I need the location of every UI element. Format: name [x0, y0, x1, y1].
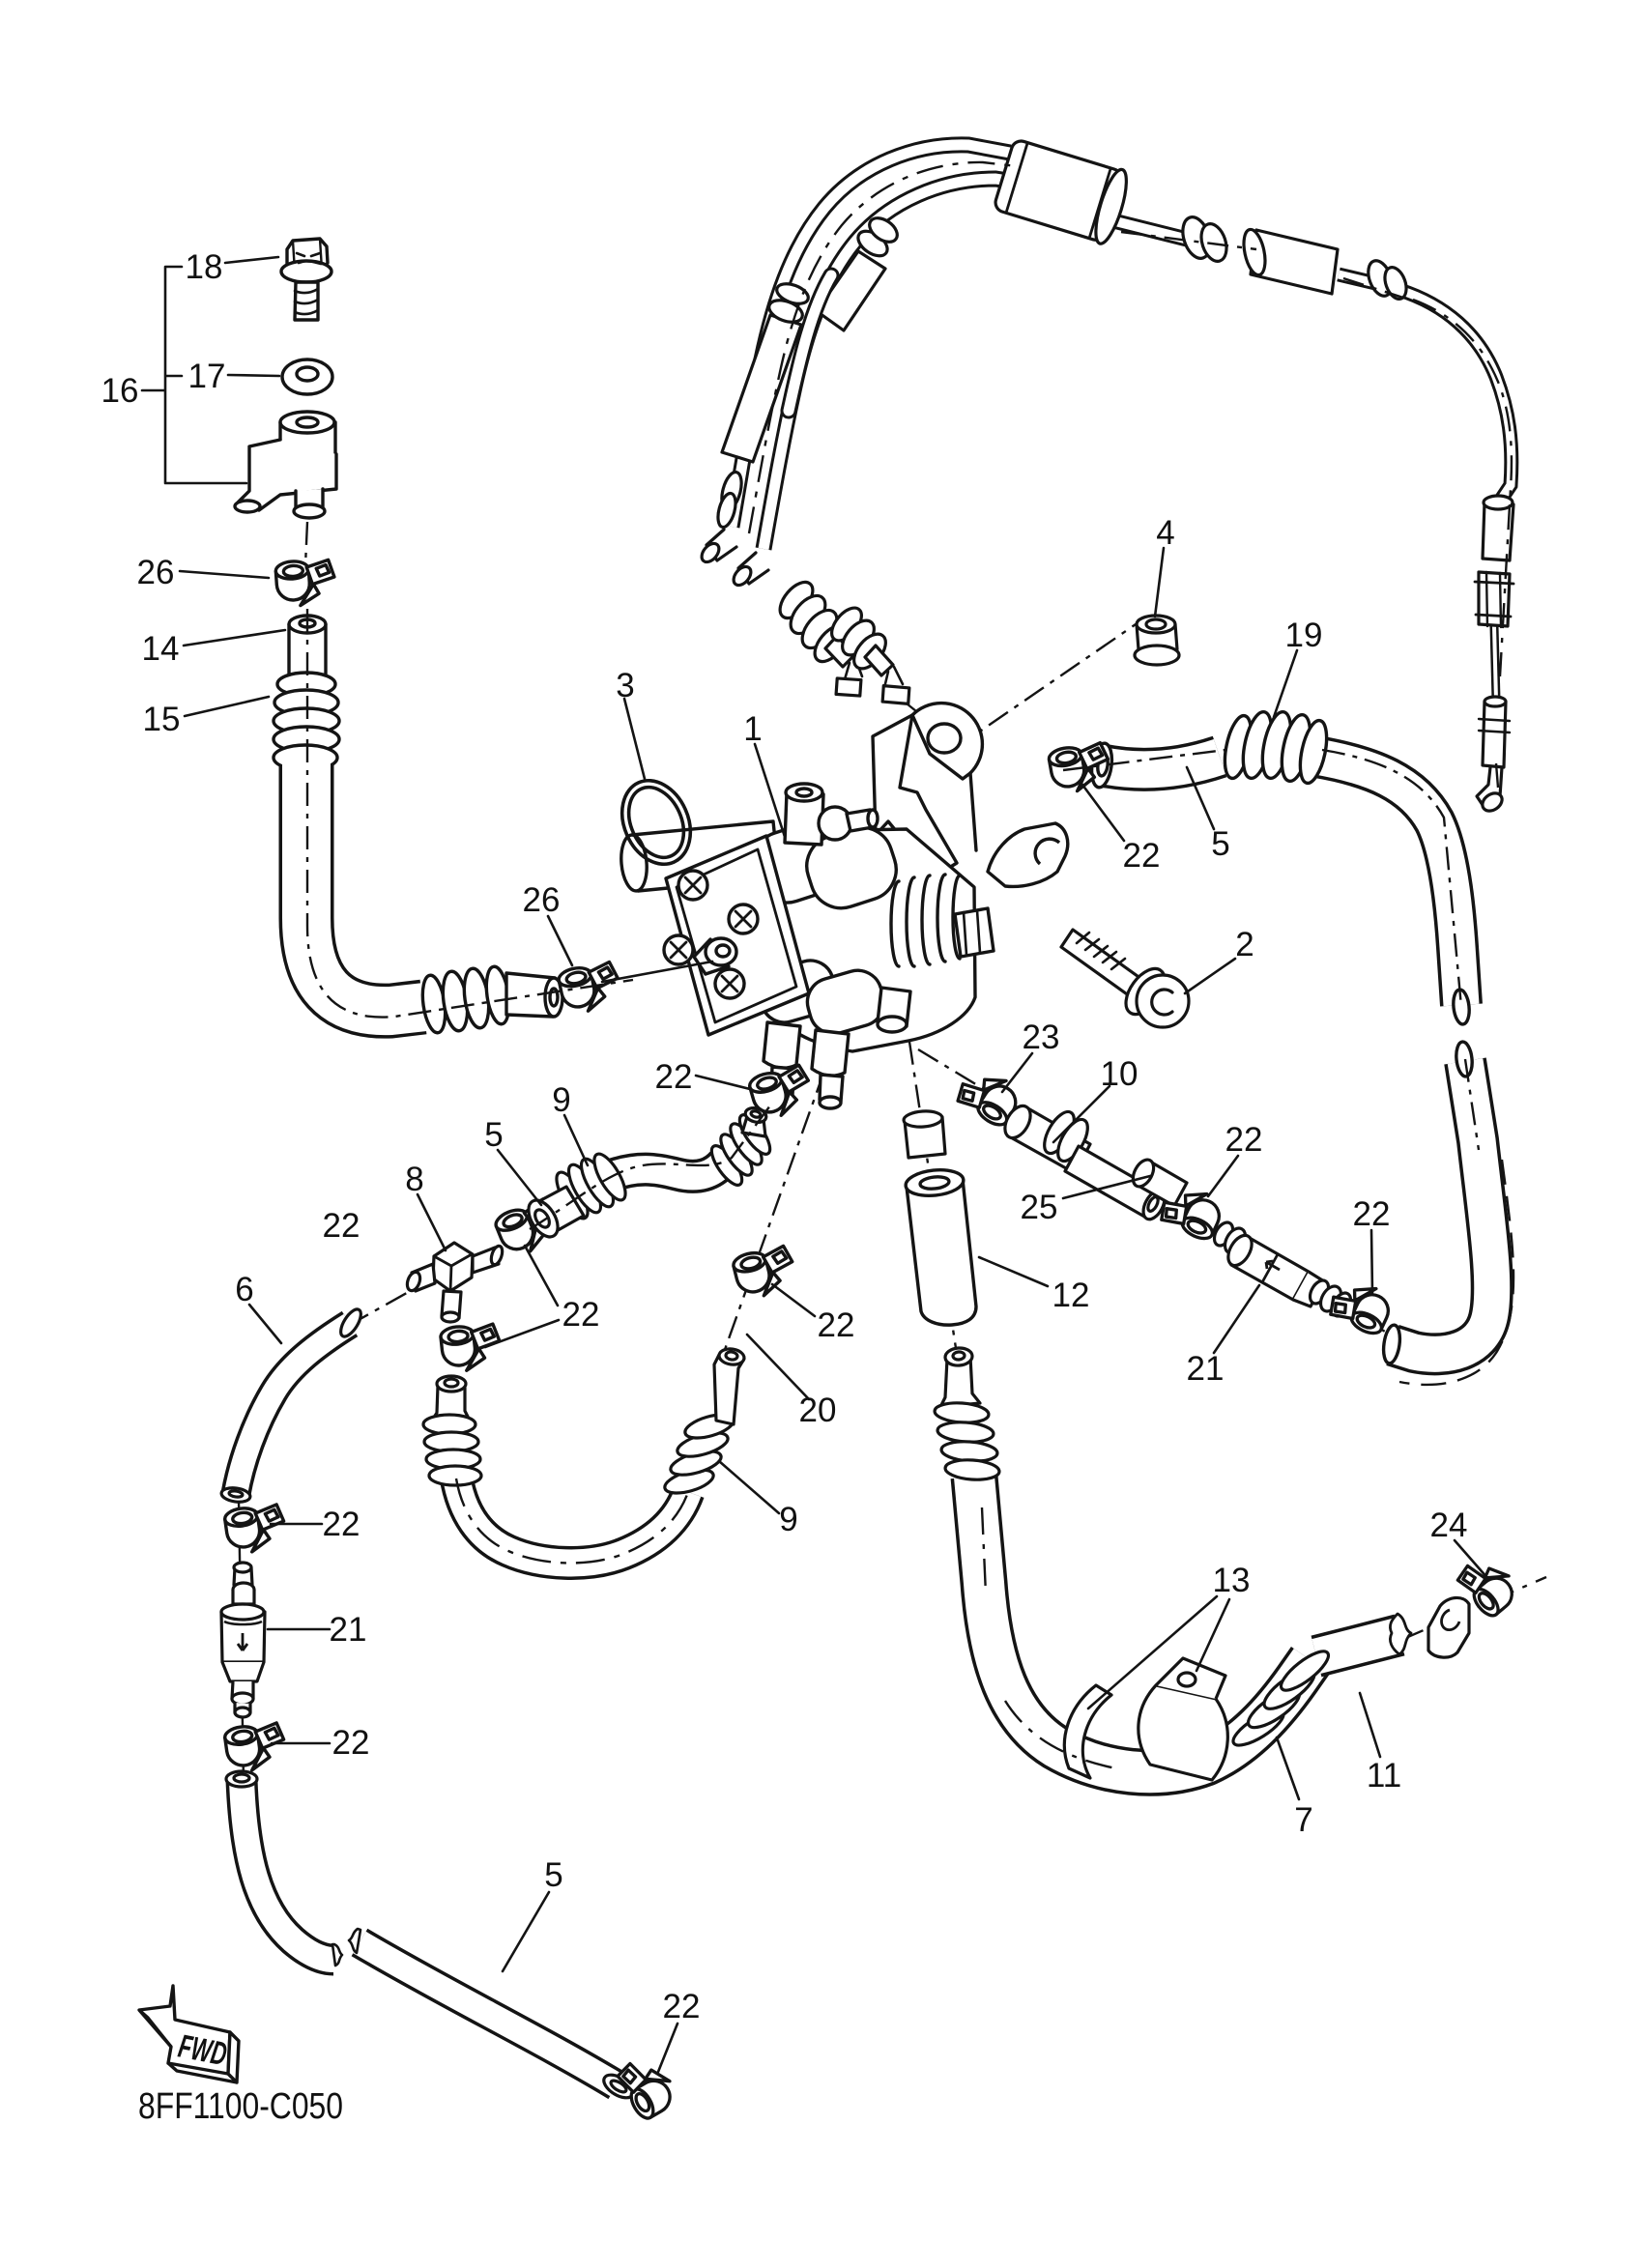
svg-text:21: 21 — [1187, 1350, 1225, 1388]
svg-text:22: 22 — [1123, 837, 1161, 875]
svg-text:8FF1100-C050: 8FF1100-C050 — [138, 2086, 343, 2127]
svg-text:22: 22 — [562, 1296, 600, 1334]
svg-text:18: 18 — [186, 248, 223, 286]
svg-text:22: 22 — [323, 1506, 360, 1543]
svg-text:22: 22 — [818, 1306, 855, 1344]
svg-text:5: 5 — [484, 1116, 503, 1154]
svg-text:9: 9 — [779, 1501, 797, 1538]
svg-text:6: 6 — [235, 1271, 253, 1308]
svg-text:10: 10 — [1101, 1055, 1139, 1093]
svg-text:15: 15 — [143, 701, 181, 738]
svg-text:2: 2 — [1235, 926, 1254, 963]
svg-text:9: 9 — [552, 1081, 570, 1119]
svg-text:21: 21 — [330, 1611, 367, 1649]
svg-text:5: 5 — [544, 1856, 562, 1894]
svg-text:12: 12 — [1052, 1277, 1090, 1314]
svg-text:23: 23 — [1023, 1019, 1060, 1056]
svg-text:26: 26 — [523, 881, 561, 919]
svg-text:22: 22 — [332, 1724, 370, 1762]
svg-text:24: 24 — [1430, 1507, 1468, 1544]
svg-text:16: 16 — [101, 372, 139, 410]
svg-text:11: 11 — [1367, 1757, 1401, 1794]
svg-text:22: 22 — [655, 1058, 693, 1096]
svg-text:19: 19 — [1285, 617, 1323, 654]
svg-text:8: 8 — [405, 1161, 423, 1198]
svg-text:7: 7 — [1294, 1801, 1312, 1839]
svg-text:22: 22 — [323, 1207, 360, 1245]
svg-text:22: 22 — [1353, 1195, 1391, 1233]
svg-text:4: 4 — [1156, 514, 1174, 552]
svg-text:5: 5 — [1211, 825, 1229, 863]
svg-text:17: 17 — [188, 358, 226, 395]
svg-text:1: 1 — [743, 710, 762, 748]
svg-text:13: 13 — [1213, 1562, 1251, 1599]
svg-text:26: 26 — [137, 554, 175, 591]
svg-text:22: 22 — [663, 1988, 701, 2025]
svg-text:14: 14 — [142, 630, 180, 668]
svg-text:3: 3 — [616, 667, 634, 704]
svg-text:25: 25 — [1021, 1189, 1058, 1226]
svg-text:20: 20 — [799, 1392, 837, 1429]
svg-text:22: 22 — [1225, 1121, 1263, 1159]
